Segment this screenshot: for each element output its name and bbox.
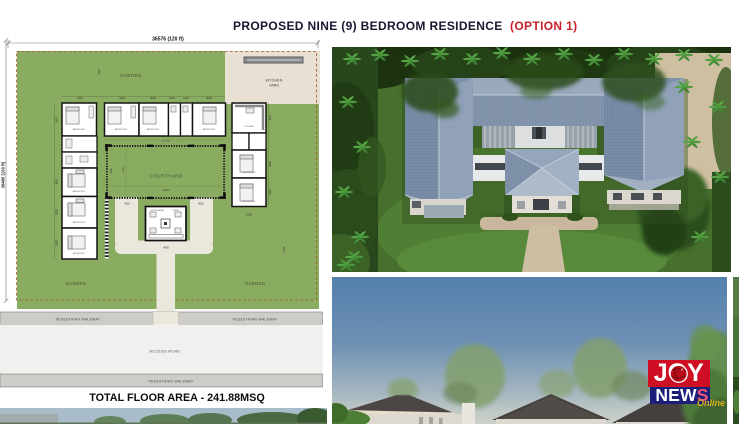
svg-text:PEDESTRIAN WALKWAY: PEDESTRIAN WALKWAY <box>149 380 194 384</box>
svg-text:BEDROOM 3: BEDROOM 3 <box>147 129 160 131</box>
svg-text:36576 (120 ft): 36576 (120 ft) <box>152 37 184 43</box>
svg-text:COURTYARD: COURTYARD <box>149 174 182 179</box>
svg-text:YARD: YARD <box>269 84 280 88</box>
svg-text:BEDROOM 6: BEDROOM 6 <box>73 222 86 224</box>
svg-text:GARDEN: GARDEN <box>245 281 265 286</box>
svg-text:PEDESTRIAN WALKWAY: PEDESTRIAN WALKWAY <box>56 318 101 322</box>
svg-text:BEDROOM 7: BEDROOM 7 <box>73 253 86 255</box>
svg-text:14200: 14200 <box>162 188 170 192</box>
svg-text:WALKWAY: WALKWAY <box>162 140 172 143</box>
svg-text:GARDEN: GARDEN <box>66 281 86 286</box>
svg-text:SITTING AREA: SITTING AREA <box>150 209 164 212</box>
svg-text:3600: 3600 <box>269 189 272 195</box>
svg-text:11400: 11400 <box>283 246 286 253</box>
svg-text:3600: 3600 <box>269 115 272 121</box>
svg-text:3600: 3600 <box>56 179 59 185</box>
svg-text:4300: 4300 <box>98 69 101 75</box>
svg-text:3600: 3600 <box>269 161 272 167</box>
svg-text:3600: 3600 <box>56 209 59 215</box>
svg-text:4520: 4520 <box>124 203 130 206</box>
svg-text:3600: 3600 <box>56 117 59 123</box>
svg-text:4800: 4800 <box>163 247 169 250</box>
svg-text:5300: 5300 <box>246 214 252 217</box>
svg-text:BEDROOM 4: BEDROOM 4 <box>203 129 216 131</box>
svg-text:BEDROOM 5: BEDROOM 5 <box>73 191 86 193</box>
svg-text:BEDROOM 9: BEDROOM 9 <box>243 201 256 203</box>
svg-text:BEDROOM 2: BEDROOM 2 <box>115 129 128 131</box>
svg-text:BEDROOM 1: BEDROOM 1 <box>73 129 86 131</box>
svg-text:36460 (100 ft): 36460 (100 ft) <box>1 161 6 188</box>
svg-text:DINING: DINING <box>173 210 180 212</box>
svg-text:4100: 4100 <box>122 167 125 173</box>
svg-text:PEDESTRIAN WALKWAY: PEDESTRIAN WALKWAY <box>233 318 278 322</box>
svg-text:GARDEN: GARDEN <box>120 73 142 78</box>
svg-text:BEDROOM 8: BEDROOM 8 <box>243 172 256 174</box>
svg-text:ACCESS ROAD: ACCESS ROAD <box>150 350 181 354</box>
svg-text:TOTAL FLOOR AREA - 241.88MSQ: TOTAL FLOOR AREA - 241.88MSQ <box>89 392 265 404</box>
svg-text:4520: 4520 <box>198 203 204 206</box>
svg-text:4200: 4200 <box>110 168 113 174</box>
svg-text:KITCHEN: KITCHEN <box>266 79 283 83</box>
svg-text:KITCHEN: KITCHEN <box>244 126 254 128</box>
svg-text:3600: 3600 <box>56 240 59 246</box>
